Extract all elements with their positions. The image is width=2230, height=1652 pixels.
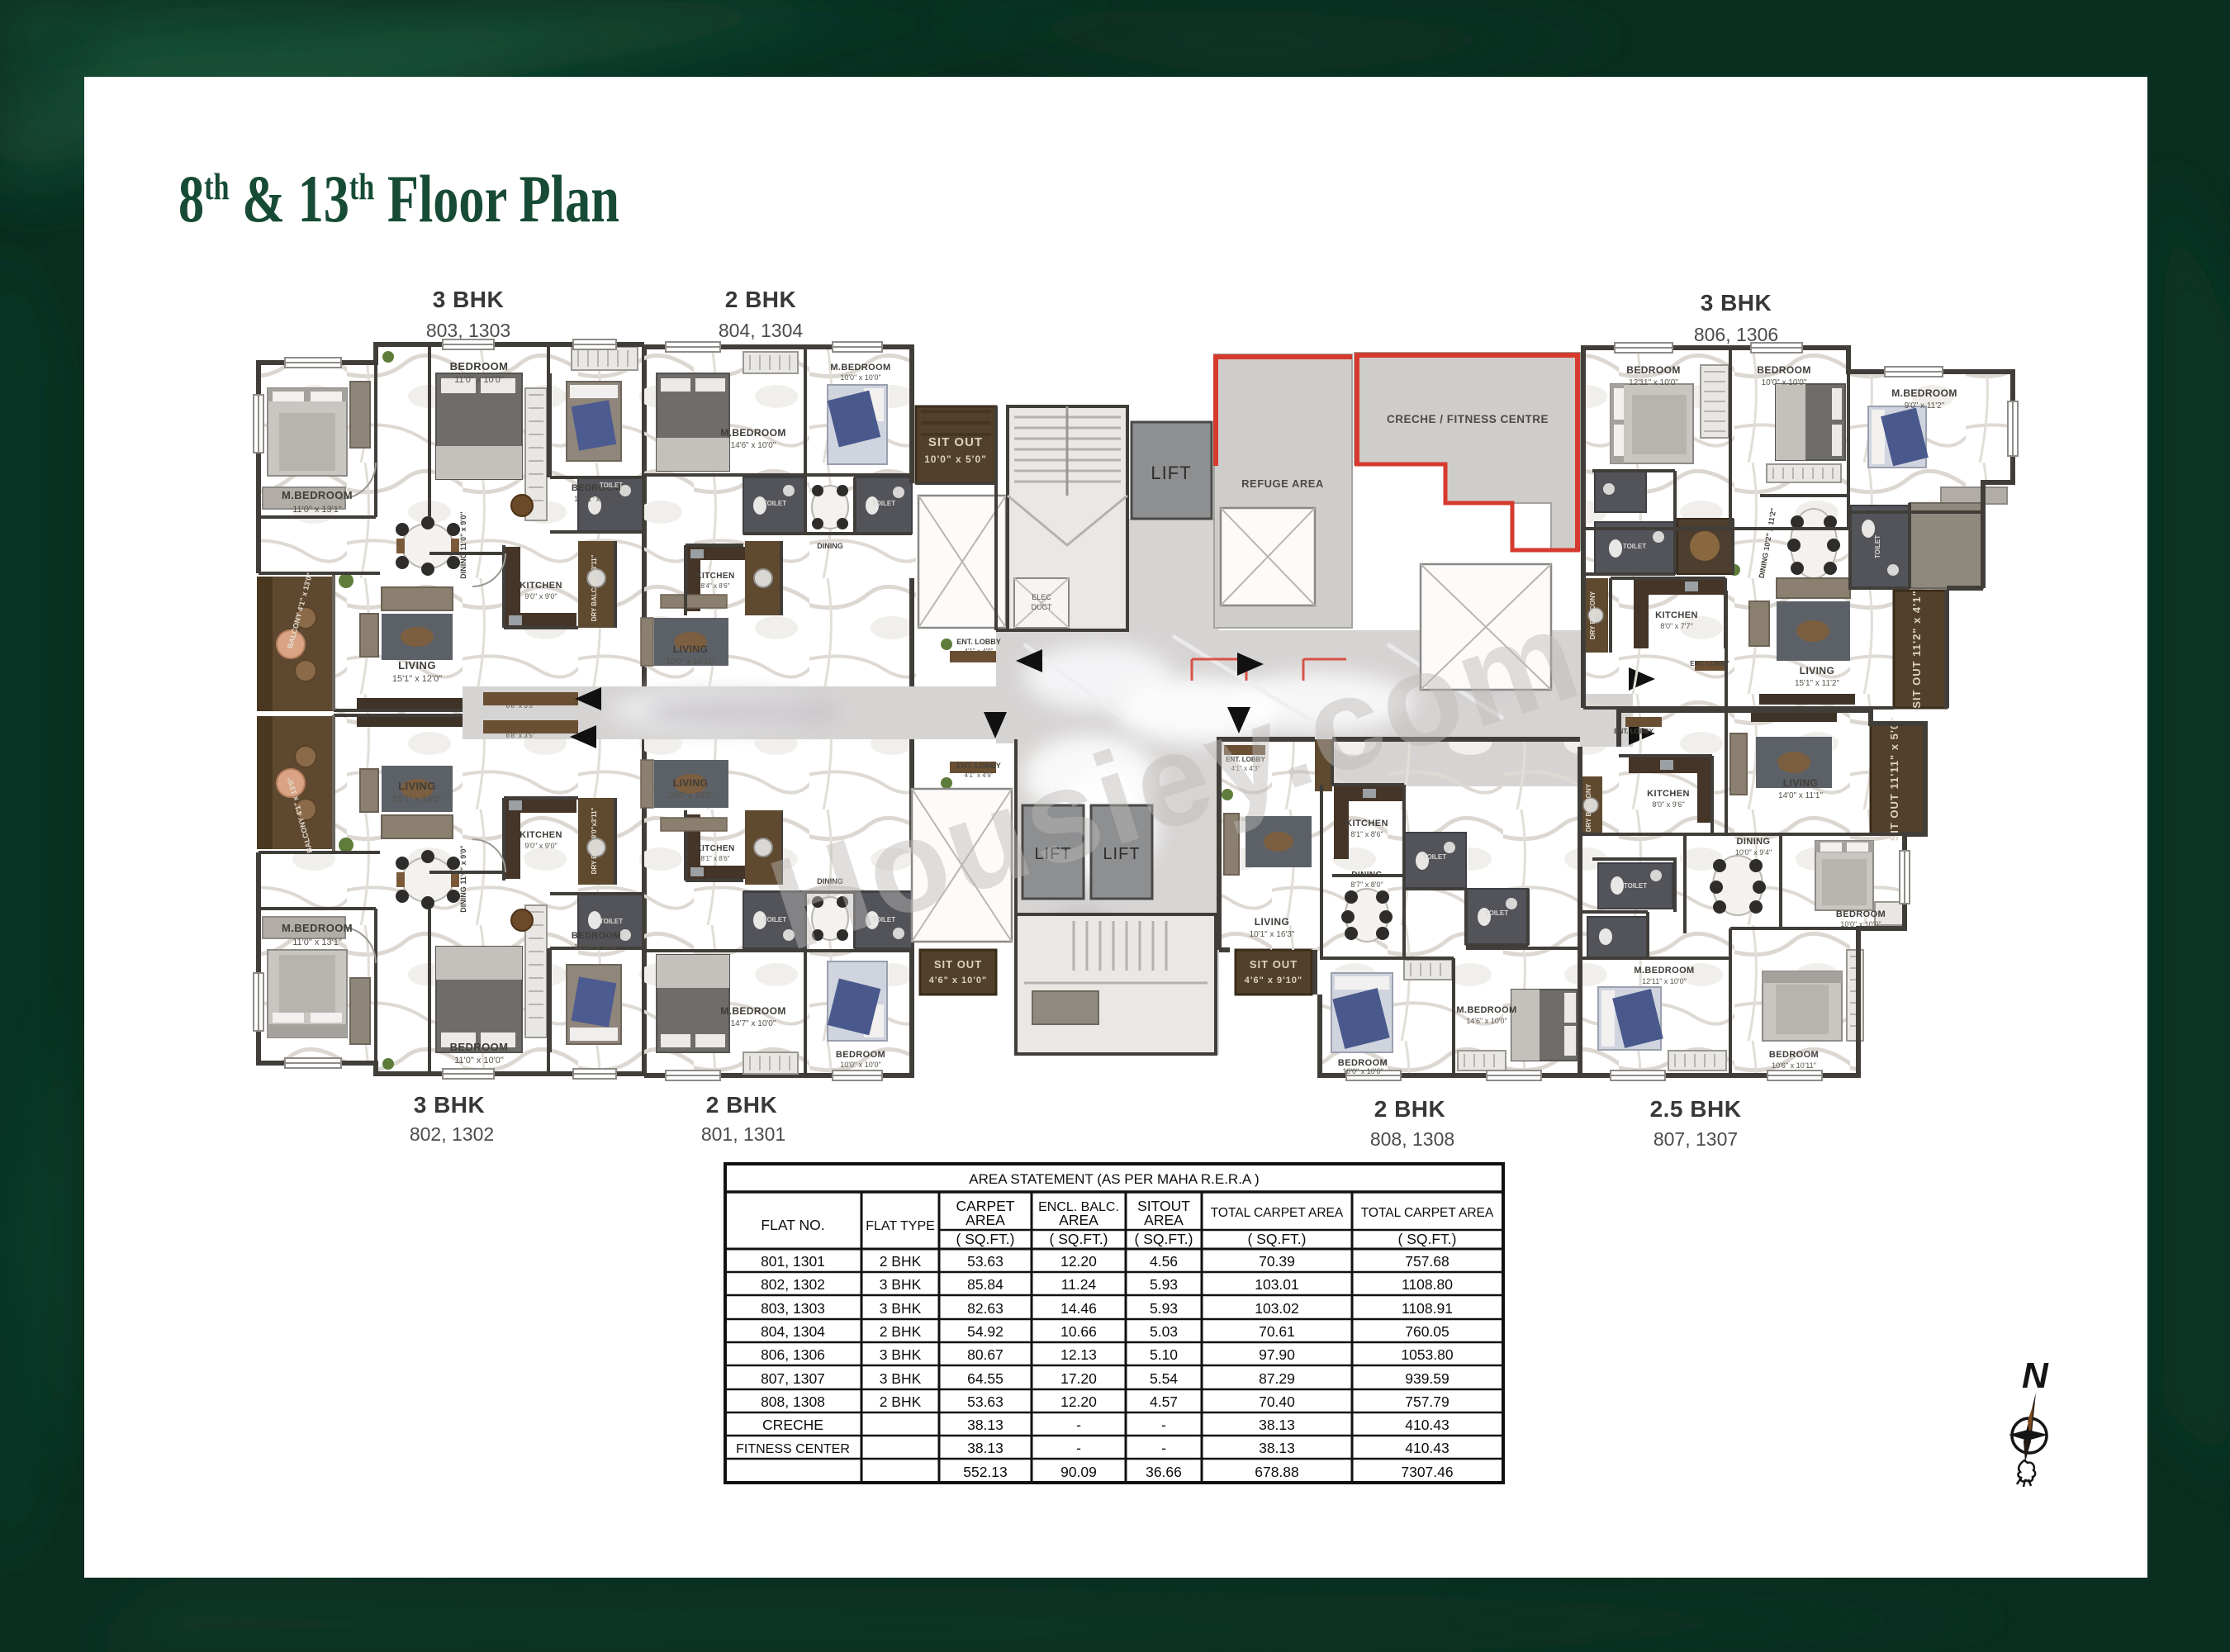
svg-text:BEDROOM: BEDROOM	[836, 1050, 885, 1060]
svg-text:AREA: AREA	[1059, 1212, 1098, 1228]
svg-text:12.20: 12.20	[1060, 1253, 1097, 1270]
svg-text:11'0" x 10'0": 11'0" x 10'0"	[454, 375, 504, 385]
svg-text:11'0" x 10'0": 11'0" x 10'0"	[454, 1056, 504, 1066]
svg-text:53.63: 53.63	[967, 1393, 1003, 1410]
svg-text:36.66: 36.66	[1146, 1464, 1182, 1480]
svg-text:8'4" x 8'6": 8'4" x 8'6"	[701, 582, 730, 590]
svg-text:LIVING: LIVING	[673, 643, 708, 655]
svg-text:FLAT NO.: FLAT NO.	[761, 1217, 824, 1233]
svg-text:10'0" x 10'0": 10'0" x 10'0"	[840, 373, 880, 382]
svg-text:12.13: 12.13	[1060, 1346, 1097, 1363]
svg-text:BEDROOM: BEDROOM	[1757, 364, 1810, 376]
svg-text:802, 1302: 802, 1302	[761, 1276, 825, 1293]
svg-text:4'6" x 10'0": 4'6" x 10'0"	[929, 976, 987, 985]
svg-text:38.13: 38.13	[967, 1440, 1003, 1456]
svg-text:TOILET: TOILET	[600, 482, 623, 489]
svg-text:BEDROOM: BEDROOM	[1836, 909, 1886, 919]
svg-text:TOILET: TOILET	[600, 918, 623, 925]
svg-text:5.54: 5.54	[1150, 1370, 1178, 1387]
svg-text:10'1" x 16'3": 10'1" x 16'3"	[1250, 930, 1295, 939]
svg-text:12.20: 12.20	[1060, 1393, 1097, 1410]
svg-text:ENT. LOBBY: ENT. LOBBY	[1690, 660, 1729, 667]
svg-text:DRY BALCONY: DRY BALCONY	[1589, 591, 1597, 639]
svg-text:9'0" x 9'0": 9'0" x 9'0"	[524, 592, 557, 601]
svg-text:14.46: 14.46	[1060, 1300, 1097, 1317]
svg-text:2 BHK: 2 BHK	[880, 1393, 922, 1410]
svg-text:5.03: 5.03	[1150, 1323, 1178, 1340]
svg-text:LIVING: LIVING	[398, 659, 436, 672]
svg-text:BEDROOM: BEDROOM	[572, 931, 621, 941]
svg-text:97.90: 97.90	[1259, 1346, 1295, 1363]
svg-text:10'0" x 14'11": 10'0" x 14'11"	[666, 657, 715, 667]
svg-text:( SQ.FT.): ( SQ.FT.)	[1248, 1231, 1307, 1247]
svg-text:DINING: DINING	[817, 542, 843, 550]
svg-text:5.10: 5.10	[1150, 1346, 1178, 1363]
svg-text:DINING 11'0" x 9'0": DINING 11'0" x 9'0"	[459, 511, 467, 578]
svg-text:12'11" x 10'0": 12'11" x 10'0"	[574, 942, 619, 951]
svg-text:TOILET: TOILET	[1485, 909, 1508, 917]
svg-text:TOILET: TOILET	[1874, 535, 1881, 558]
svg-text:M.BEDROOM: M.BEDROOM	[720, 427, 786, 439]
svg-text:12'11" x 10'0": 12'11" x 10'0"	[1642, 977, 1687, 985]
svg-text:4'6" x 9'10": 4'6" x 9'10"	[1245, 976, 1302, 985]
svg-text:3 BHK: 3 BHK	[880, 1300, 922, 1317]
svg-text:2 BHK: 2 BHK	[706, 1092, 778, 1118]
svg-text:9'0" x 11'2": 9'0" x 11'2"	[1905, 401, 1945, 411]
svg-text:( SQ.FT.): ( SQ.FT.)	[1050, 1231, 1108, 1247]
svg-text:M.BEDROOM: M.BEDROOM	[830, 363, 890, 373]
svg-text:14'6" x 10'0": 14'6" x 10'0"	[731, 441, 776, 450]
svg-text:BEDROOM: BEDROOM	[1626, 364, 1680, 376]
svg-text:82.63: 82.63	[967, 1300, 1003, 1317]
svg-text:DRY BALC 9'0"x3'11": DRY BALC 9'0"x3'11"	[591, 554, 598, 621]
svg-text:54.92: 54.92	[967, 1323, 1003, 1340]
svg-text:3 BHK: 3 BHK	[880, 1346, 922, 1363]
svg-text:70.39: 70.39	[1259, 1253, 1295, 1270]
svg-text:10'6" x 10'11": 10'6" x 10'11"	[1772, 1061, 1816, 1070]
svg-text:LIVING: LIVING	[1783, 777, 1818, 789]
svg-text:BEDROOM: BEDROOM	[1769, 1050, 1819, 1060]
svg-text:LIVING: LIVING	[673, 777, 708, 789]
svg-text:8'1" x 8'6": 8'1" x 8'6"	[701, 855, 730, 862]
svg-text:10'0" x 9'4": 10'0" x 9'4"	[1735, 848, 1772, 857]
svg-text:TOILET: TOILET	[872, 500, 895, 507]
svg-text:( SQ.FT.): ( SQ.FT.)	[956, 1231, 1015, 1247]
svg-text:8'7" x 8'0": 8'7" x 8'0"	[1350, 881, 1383, 889]
svg-text:808, 1308: 808, 1308	[1370, 1128, 1454, 1150]
svg-text:103.02: 103.02	[1255, 1300, 1299, 1317]
svg-text:806, 1306: 806, 1306	[761, 1346, 825, 1363]
svg-text:DINING: DINING	[1351, 871, 1382, 880]
svg-text:CRECHE: CRECHE	[762, 1417, 823, 1433]
svg-text:9'0" x 9'0": 9'0" x 9'0"	[524, 842, 557, 850]
svg-text:KITCHEN: KITCHEN	[1345, 819, 1388, 828]
svg-text:1108.80: 1108.80	[1402, 1276, 1453, 1293]
svg-text:KITCHEN: KITCHEN	[1655, 610, 1698, 620]
svg-text:-: -	[1161, 1417, 1166, 1433]
svg-text:TOTAL CARPET AREA: TOTAL CARPET AREA	[1211, 1206, 1344, 1220]
svg-text:10.66: 10.66	[1060, 1323, 1097, 1340]
svg-text:-: -	[1076, 1417, 1081, 1433]
svg-text:LIVING: LIVING	[398, 780, 436, 792]
svg-text:N: N	[2022, 1355, 2049, 1396]
svg-text:17.20: 17.20	[1060, 1370, 1097, 1387]
svg-text:53.63: 53.63	[967, 1253, 1003, 1270]
svg-text:3 BHK: 3 BHK	[414, 1092, 486, 1118]
svg-text:15'1" x 13'0": 15'1" x 13'0"	[392, 795, 442, 805]
svg-text:TOILET: TOILET	[1623, 543, 1646, 550]
svg-text:4.56: 4.56	[1150, 1253, 1178, 1270]
svg-text:678.88: 678.88	[1255, 1464, 1299, 1480]
svg-text:KITCHEN: KITCHEN	[695, 844, 734, 853]
svg-text:2 BHK: 2 BHK	[880, 1253, 922, 1270]
svg-text:552.13: 552.13	[963, 1464, 1008, 1480]
svg-text:2 BHK: 2 BHK	[880, 1323, 922, 1340]
svg-text:807, 1307: 807, 1307	[1654, 1128, 1738, 1150]
svg-text:70.61: 70.61	[1259, 1323, 1295, 1340]
svg-text:4'1" x 4'9": 4'1" x 4'9"	[965, 648, 994, 655]
svg-text:103.01: 103.01	[1255, 1276, 1299, 1293]
svg-text:11'0" x 13'1": 11'0" x 13'1"	[292, 938, 342, 947]
svg-text:807, 1307: 807, 1307	[761, 1370, 825, 1387]
svg-text:SIT OUT 11'11" x 5'0": SIT OUT 11'11" x 5'0"	[1888, 717, 1900, 842]
svg-text:11'0" x 13'1": 11'0" x 13'1"	[292, 505, 342, 515]
svg-text:757.68: 757.68	[1405, 1253, 1449, 1270]
svg-text:ENT. LOBBY: ENT. LOBBY	[1614, 728, 1654, 735]
svg-text:TOILET: TOILET	[1624, 882, 1647, 890]
svg-text:5.93: 5.93	[1150, 1300, 1178, 1317]
svg-text:803, 1303: 803, 1303	[426, 320, 510, 341]
svg-text:ELEC: ELEC	[1032, 593, 1051, 601]
svg-text:8th & 13th Floor Plan: 8th & 13th Floor Plan	[178, 161, 619, 236]
svg-text:-: -	[1161, 1440, 1166, 1456]
svg-text:4.57: 4.57	[1150, 1393, 1178, 1410]
svg-text:3 BHK: 3 BHK	[1701, 290, 1772, 316]
svg-text:802, 1302: 802, 1302	[410, 1123, 494, 1145]
svg-text:410.43: 410.43	[1405, 1417, 1449, 1433]
svg-text:10'0" x 10'0": 10'0" x 10'0"	[1762, 378, 1807, 387]
svg-text:M.BEDROOM: M.BEDROOM	[1891, 387, 1957, 399]
svg-text:10'0" x 10'0": 10'0" x 10'0"	[1342, 1067, 1383, 1075]
svg-text:M.BEDROOM: M.BEDROOM	[282, 922, 353, 934]
svg-text:TOILET: TOILET	[1423, 853, 1446, 861]
svg-text:AREA STATEMENT (AS PER MAHA R.: AREA STATEMENT (AS PER MAHA R.E.R.A )	[969, 1171, 1259, 1187]
svg-text:DINING: DINING	[1737, 837, 1771, 847]
svg-text:ENT. LOBBY: ENT. LOBBY	[956, 638, 1001, 646]
svg-text:( SQ.FT.): ( SQ.FT.)	[1135, 1231, 1193, 1247]
svg-text:801, 1301: 801, 1301	[701, 1123, 785, 1145]
svg-text:SIT OUT: SIT OUT	[928, 435, 983, 449]
svg-text:TOTAL CARPET AREA: TOTAL CARPET AREA	[1361, 1206, 1494, 1220]
svg-text:DRY BALC 9'0"x3'11": DRY BALC 9'0"x3'11"	[591, 807, 598, 874]
svg-text:804, 1304: 804, 1304	[761, 1323, 825, 1340]
svg-text:1053.80: 1053.80	[1401, 1346, 1454, 1363]
svg-text:64.55: 64.55	[967, 1370, 1003, 1387]
svg-text:KITCHEN: KITCHEN	[695, 572, 734, 581]
svg-text:10'0" x 5'0": 10'0" x 5'0"	[924, 453, 987, 465]
svg-text:2 BHK: 2 BHK	[1374, 1096, 1446, 1122]
svg-text:808, 1308: 808, 1308	[761, 1393, 825, 1410]
svg-text:85.84: 85.84	[967, 1276, 1003, 1293]
svg-text:8'1" x 8'6": 8'1" x 8'6"	[1350, 830, 1383, 838]
svg-text:8'0" x 9'6": 8'0" x 9'6"	[1652, 800, 1684, 809]
svg-text:M.BEDROOM: M.BEDROOM	[1634, 966, 1694, 976]
svg-text:3 BHK: 3 BHK	[433, 287, 505, 312]
svg-text:5.93: 5.93	[1150, 1276, 1178, 1293]
svg-text:803, 1303: 803, 1303	[761, 1300, 825, 1317]
svg-text:804, 1304: 804, 1304	[719, 320, 804, 341]
svg-text:REFUGE AREA: REFUGE AREA	[1241, 477, 1324, 490]
svg-text:FITNESS CENTER: FITNESS CENTER	[736, 1442, 850, 1456]
svg-text:10'0" x 10'0": 10'0" x 10'0"	[840, 1061, 880, 1069]
svg-text:LIFT: LIFT	[1151, 463, 1191, 483]
svg-text:CRECHE / FITNESS CENTRE: CRECHE / FITNESS CENTRE	[1387, 413, 1549, 425]
svg-text:2 BHK: 2 BHK	[725, 287, 797, 312]
svg-text:BEDROOM: BEDROOM	[450, 1041, 509, 1053]
svg-text:LIVING: LIVING	[1800, 665, 1834, 676]
svg-text:87.29: 87.29	[1259, 1370, 1295, 1387]
svg-text:14'0" x 11'1": 14'0" x 11'1"	[1778, 791, 1824, 800]
svg-text:15'1" x 12'0": 15'1" x 12'0"	[392, 674, 442, 684]
svg-text:12'11" x 10'0": 12'11" x 10'0"	[1629, 378, 1678, 387]
svg-text:90.09: 90.09	[1060, 1464, 1097, 1480]
svg-text:FLAT TYPE: FLAT TYPE	[866, 1219, 935, 1233]
svg-text:M.BEDROOM: M.BEDROOM	[1456, 1005, 1516, 1015]
svg-text:15'1" x 11'2": 15'1" x 11'2"	[1795, 679, 1840, 688]
svg-text:10'0" x 10'0": 10'0" x 10'0"	[1840, 920, 1881, 928]
svg-text:-: -	[1076, 1440, 1081, 1456]
svg-text:14'6" x 10'0": 14'6" x 10'0"	[1466, 1017, 1506, 1025]
svg-text:760.05: 760.05	[1405, 1323, 1449, 1340]
svg-text:DINING 11'0" x 9'0": DINING 11'0" x 9'0"	[459, 845, 467, 912]
svg-text:AREA: AREA	[966, 1212, 1005, 1228]
svg-text:38.13: 38.13	[1259, 1417, 1295, 1433]
svg-text:8'0" x 7'7": 8'0" x 7'7"	[1660, 622, 1692, 630]
svg-text:AREA: AREA	[1144, 1212, 1184, 1228]
svg-text:38.13: 38.13	[1259, 1440, 1295, 1456]
svg-text:( SQ.FT.): ( SQ.FT.)	[1398, 1231, 1457, 1247]
svg-text:3 BHK: 3 BHK	[880, 1276, 922, 1293]
svg-text:70.40: 70.40	[1259, 1393, 1295, 1410]
svg-text:2.5 BHK: 2.5 BHK	[1650, 1096, 1742, 1122]
svg-text:757.79: 757.79	[1405, 1393, 1449, 1410]
svg-text:11.24: 11.24	[1061, 1276, 1097, 1293]
svg-text:410.43: 410.43	[1405, 1440, 1449, 1456]
svg-text:M.BEDROOM: M.BEDROOM	[720, 1005, 786, 1017]
svg-text:BEDROOM: BEDROOM	[450, 360, 509, 373]
svg-text:SIT OUT 11'2" x 4'1": SIT OUT 11'2" x 4'1"	[1910, 590, 1923, 708]
svg-text:1108.91: 1108.91	[1402, 1300, 1453, 1317]
svg-text:KITCHEN: KITCHEN	[520, 581, 562, 591]
svg-text:TOILET: TOILET	[763, 500, 786, 507]
svg-text:KITCHEN: KITCHEN	[1647, 789, 1690, 799]
svg-text:DRY BALCONY: DRY BALCONY	[1585, 783, 1592, 832]
svg-text:LIVING: LIVING	[1255, 916, 1289, 928]
svg-text:939.59: 939.59	[1405, 1370, 1449, 1387]
svg-text:7307.46: 7307.46	[1401, 1464, 1453, 1480]
svg-text:80.67: 80.67	[967, 1346, 1003, 1363]
svg-text:DUCT: DUCT	[1032, 603, 1052, 611]
svg-text:10'0" x 16'3": 10'0" x 16'3"	[668, 791, 714, 800]
svg-text:38.13: 38.13	[967, 1417, 1003, 1433]
svg-text:SIT OUT: SIT OUT	[1250, 958, 1298, 971]
svg-text:3 BHK: 3 BHK	[880, 1370, 922, 1387]
svg-text:KITCHEN: KITCHEN	[520, 830, 562, 840]
svg-text:801, 1301: 801, 1301	[761, 1253, 825, 1270]
svg-text:SIT OUT: SIT OUT	[934, 958, 982, 971]
svg-text:12'11" x 10'0": 12'11" x 10'0"	[574, 495, 619, 503]
svg-text:M.BEDROOM: M.BEDROOM	[282, 489, 353, 501]
svg-text:14'7" x 10'0": 14'7" x 10'0"	[731, 1019, 776, 1028]
